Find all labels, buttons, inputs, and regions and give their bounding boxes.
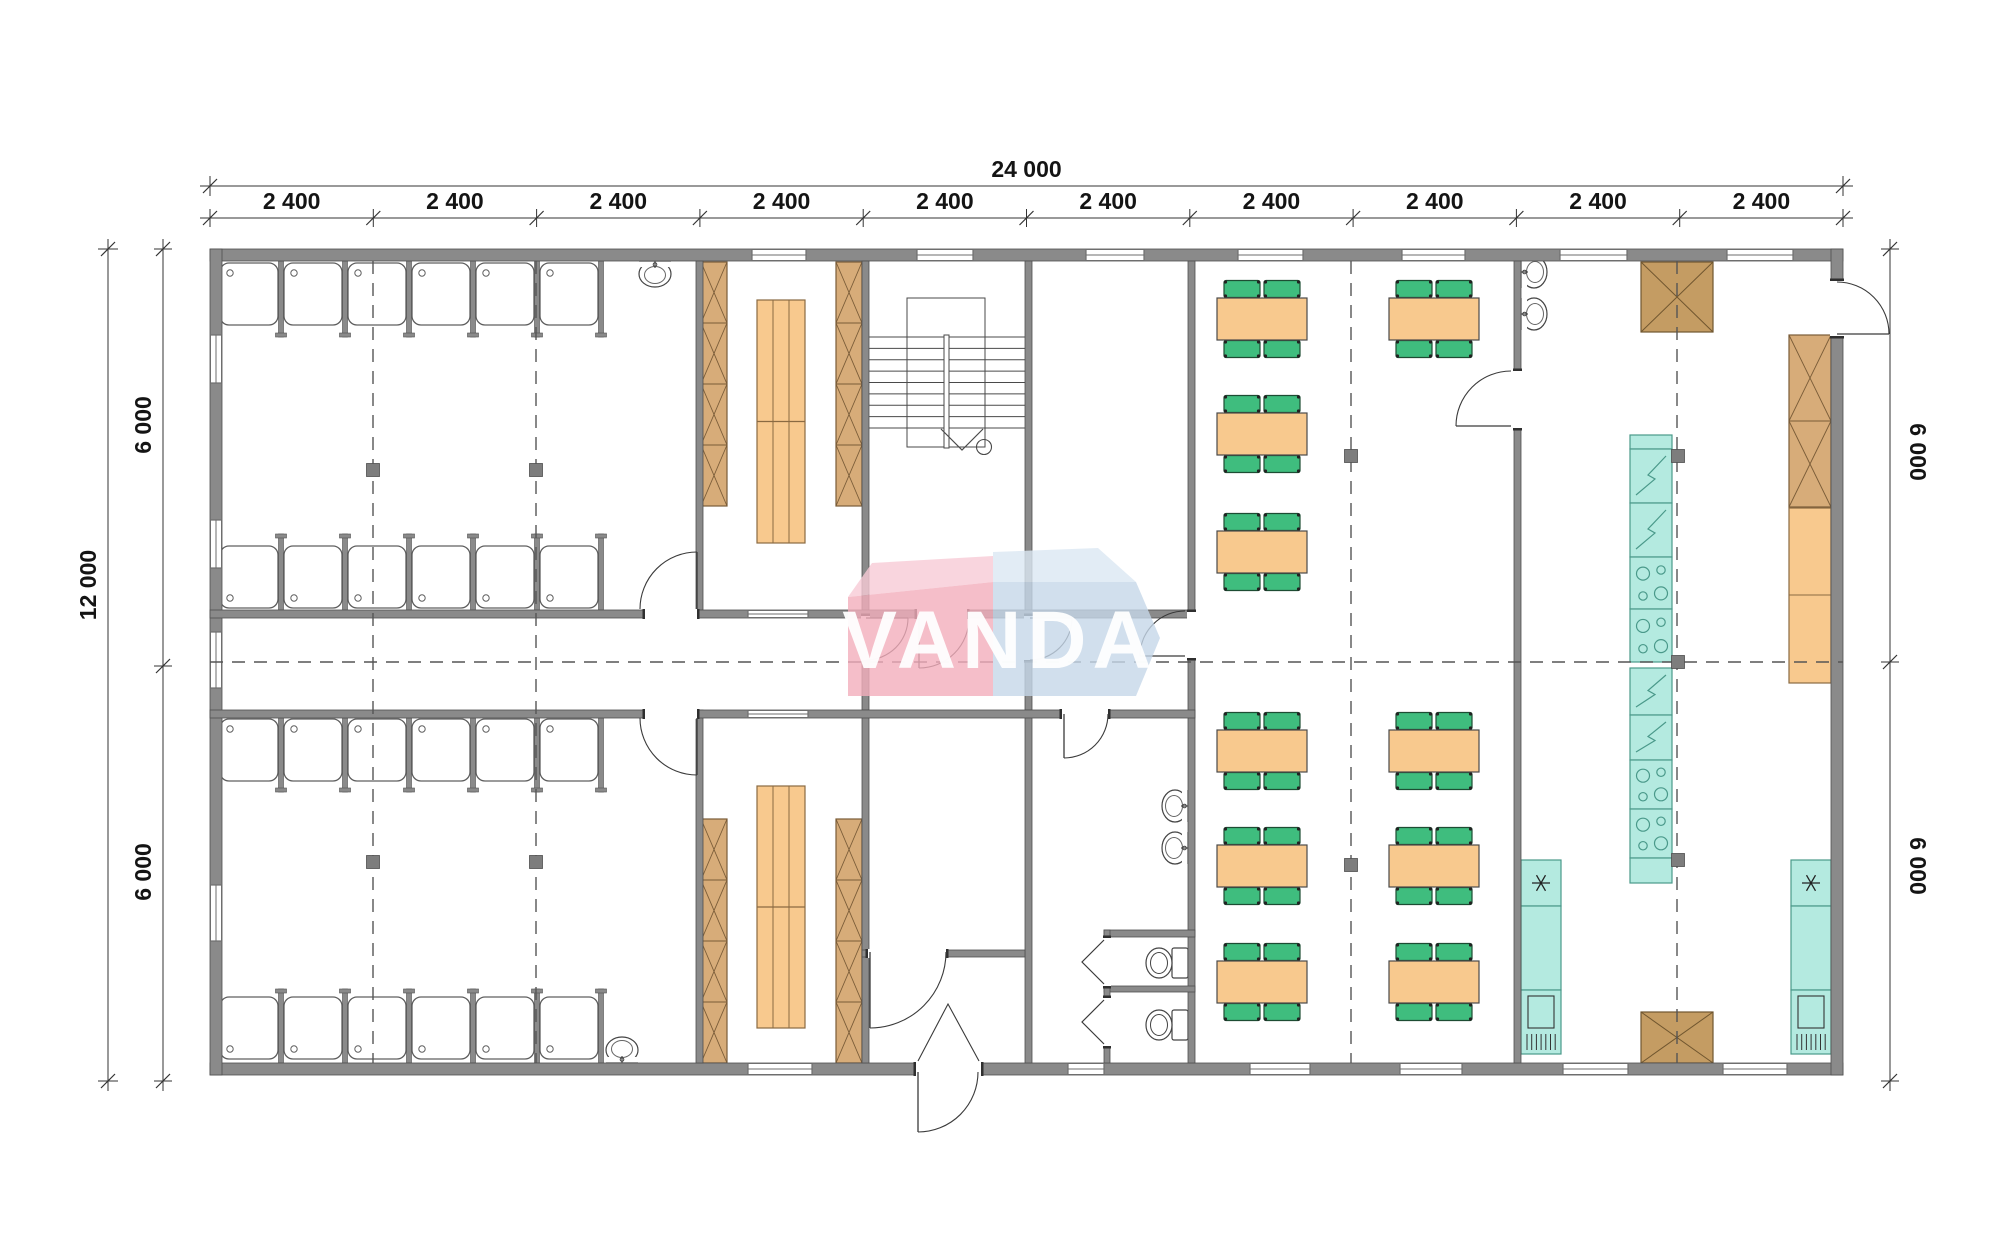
watermark-text: VANDA (842, 595, 1157, 686)
dimension-label: 2 400 (1079, 188, 1137, 214)
sink-icon (606, 1037, 638, 1064)
dimension-label: 24 000 (991, 156, 1061, 182)
dimension-label: 6 000 (130, 396, 156, 454)
sink-icon (1162, 790, 1189, 822)
sink-icon (1520, 298, 1547, 330)
dimension-label: 2 400 (263, 188, 321, 214)
dimension-label: 6 000 (1905, 837, 1931, 895)
floorplan-page: VANDA24 0002 4002 4002 4002 4002 4002 40… (0, 0, 2000, 1256)
sink-icon (1162, 832, 1189, 864)
floor-plan: VANDA24 0002 4002 4002 4002 4002 4002 40… (0, 0, 2000, 1256)
toilet-icon (1146, 1010, 1188, 1040)
dimension-label: 6 000 (130, 843, 156, 901)
dimension-label: 2 400 (589, 188, 647, 214)
dimension-label: 2 400 (916, 188, 974, 214)
kitchen-island (1630, 435, 1672, 883)
toilet-icon (1146, 948, 1188, 978)
dimension-label: 2 400 (426, 188, 484, 214)
dimension-label: 2 400 (1406, 188, 1464, 214)
vanda-watermark-logo: VANDA (842, 548, 1160, 696)
sink-icon (639, 260, 671, 287)
dimension-label: 6 000 (1905, 423, 1931, 481)
dimension-label: 12 000 (75, 550, 101, 620)
dimension-label: 2 400 (1243, 188, 1301, 214)
dimension-label: 2 400 (1733, 188, 1791, 214)
dimension-label: 2 400 (753, 188, 811, 214)
dimension-label: 2 400 (1569, 188, 1627, 214)
kitchen-counter (1789, 508, 1831, 683)
